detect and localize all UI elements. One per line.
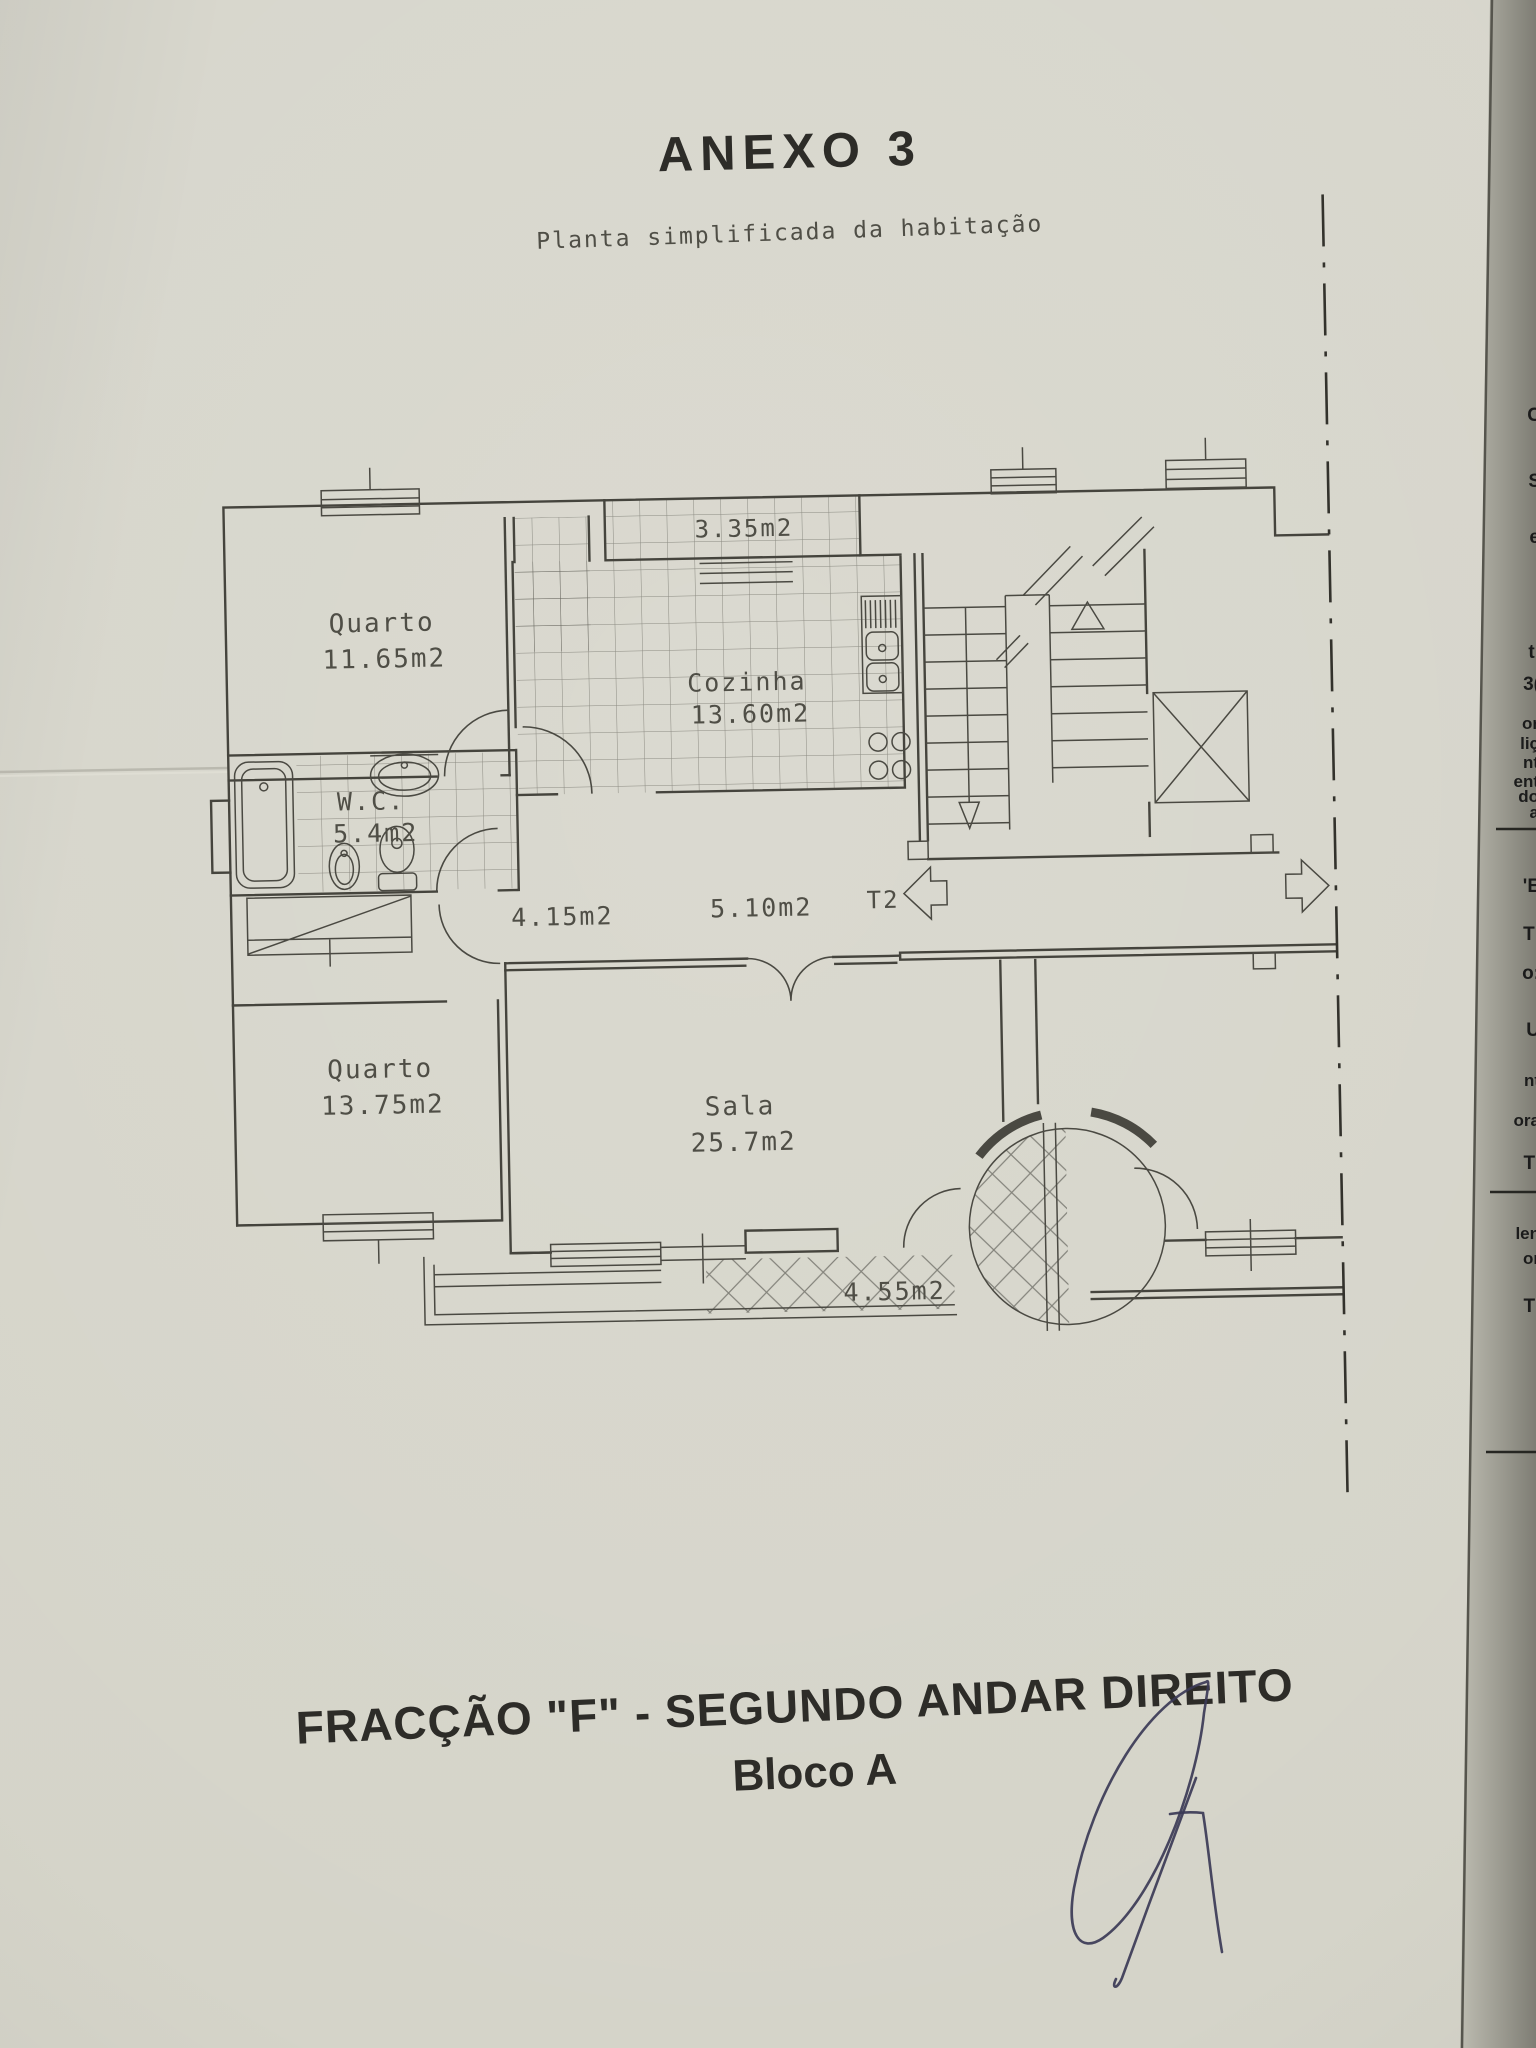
svg-text:e: e	[1529, 527, 1536, 548]
svg-text:U: U	[1526, 1020, 1536, 1041]
paper-crease	[0, 768, 228, 776]
svg-text:3(: 3(	[1523, 674, 1536, 695]
svg-text:TI: TI	[1523, 924, 1536, 945]
label-sala-area: 25.7m2	[690, 1127, 796, 1159]
scanned-document: C S e I I ti 3( or liç nt ent do a 'E TI…	[0, 0, 1536, 2048]
svg-text:'E: 'E	[1523, 876, 1536, 897]
entrance-arrow-left	[903, 867, 947, 920]
label-varanda-area: 4.55m2	[843, 1276, 946, 1307]
elevator-shaft	[1153, 691, 1249, 803]
label-typology: T2	[866, 886, 899, 915]
label-wc-name: W.C.	[337, 786, 406, 816]
svg-text:S: S	[1528, 471, 1536, 492]
label-cozinha-name: Cozinha	[687, 666, 807, 697]
break-marks	[994, 517, 1157, 668]
label-hall-area: 4.15m2	[511, 901, 614, 932]
svg-text:or: or	[1523, 1249, 1536, 1268]
svg-text:ora: ora	[1514, 1111, 1536, 1130]
label-wc-area: 5.4m2	[333, 818, 419, 849]
label-quarto1-name: Quarto	[328, 608, 434, 640]
label-sala-name: Sala	[704, 1091, 775, 1122]
svg-text:or: or	[1522, 714, 1536, 733]
label-quarto2-area: 13.75m2	[321, 1089, 445, 1121]
label-balcao-top: 3.35m2	[694, 514, 793, 544]
label-quarto1-area: 11.65m2	[322, 643, 446, 675]
underlay-page-edge: C S e I I ti 3( or liç nt ent do a 'E TI…	[1460, 0, 1536, 2048]
label-cozinha-area: 13.60m2	[691, 698, 811, 729]
page-title: ANEXO 3	[657, 122, 922, 182]
svg-text:liç: liç	[1520, 734, 1536, 753]
entrance-arrow-right	[1285, 859, 1329, 912]
svg-text:nt: nt	[1524, 1071, 1536, 1090]
svg-text:ti: ti	[1528, 642, 1536, 663]
svg-text:Ti: Ti	[1523, 1296, 1536, 1317]
svg-text:o:: o:	[1522, 963, 1536, 984]
entrance-arrows	[903, 859, 1329, 919]
page-header: ANEXO 3 Planta simplificada da habitação	[536, 122, 1044, 255]
svg-text:nt: nt	[1523, 753, 1536, 772]
svg-text:len: len	[1515, 1224, 1536, 1243]
block-title: Bloco A	[731, 1745, 898, 1801]
label-corredor-area: 5.10m2	[710, 892, 813, 923]
stairwell	[922, 517, 1160, 831]
svg-text:a: a	[1530, 803, 1536, 822]
closet	[247, 895, 412, 968]
svg-text:Ti: Ti	[1523, 1153, 1536, 1174]
page-subtitle: Planta simplificada da habitação	[536, 211, 1044, 255]
fraction-title: FRACÇÃO "F" - SEGUNDO ANDAR DIREITO	[295, 1658, 1295, 1754]
svg-text:C: C	[1527, 405, 1536, 426]
stair-direction-line	[965, 607, 969, 802]
page-footer: FRACÇÃO "F" - SEGUNDO ANDAR DIREITO Bloc…	[295, 1658, 1298, 1819]
symmetry-axis-line	[1323, 194, 1348, 1499]
signature	[1072, 1681, 1222, 1987]
floor-plan: 3.35m2 Quarto 11.65m2 Cozinha 13.60m2 W.…	[200, 194, 1348, 1520]
stair-down-arrow	[959, 802, 979, 828]
label-quarto2-name: Quarto	[327, 1054, 433, 1086]
